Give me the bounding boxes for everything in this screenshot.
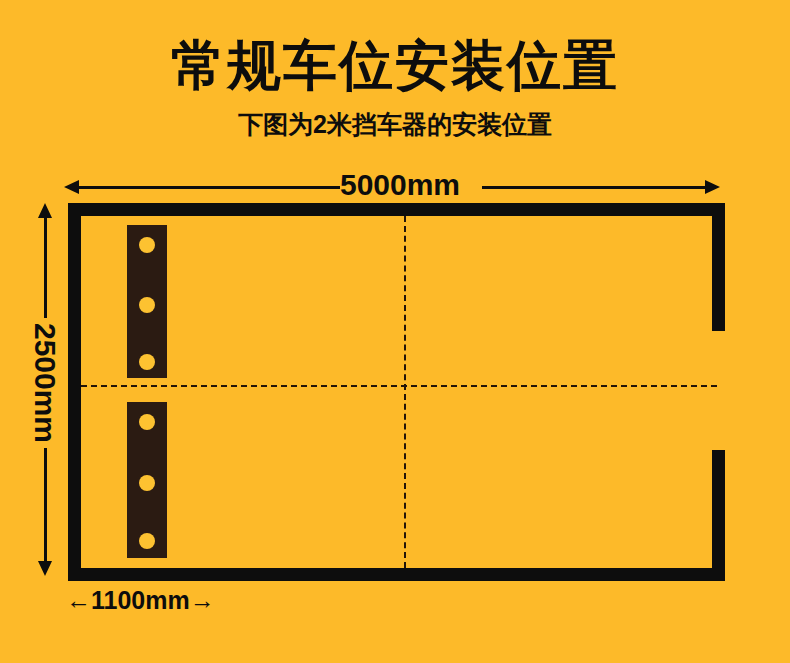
dimension-line [76,186,340,189]
parking-wall-bottom [68,568,725,581]
dimension-line [482,186,708,189]
parking-wall-left [68,203,81,581]
arrow-down-icon [38,561,52,576]
centerline-vertical [404,216,406,568]
wheel-stopper-lower [127,402,167,558]
page-subtitle: 下图为2米挡车器的安装位置 [0,108,790,141]
installation-diagram: 常规车位安装位置 下图为2米挡车器的安装位置 5000mm 2500mm ←11… [0,0,790,663]
height-dimension-label: 2500mm [28,323,62,443]
centerline-horizontal [81,385,717,387]
offset-dimension-label: 1100mm [91,586,190,614]
arrow-right-icon [705,180,720,194]
mounting-hole [139,475,155,491]
parking-wall-right-upper [712,203,725,331]
wheel-stopper-upper [127,225,167,378]
page-title: 常规车位安装位置 [0,30,790,103]
mounting-hole [139,237,155,253]
arrow-right-icon: → [190,586,215,614]
mounting-hole [139,414,155,430]
dimension-line [44,448,47,562]
mounting-hole [139,297,155,313]
mounting-hole [139,354,155,370]
width-dimension-label: 5000mm [340,168,460,202]
dimension-line [44,216,47,318]
offset-dimension: ←1100mm→ [66,586,208,615]
mounting-hole [139,533,155,549]
arrow-left-icon: ← [66,586,91,614]
parking-wall-right-lower [712,450,725,581]
parking-wall-top [68,203,725,216]
